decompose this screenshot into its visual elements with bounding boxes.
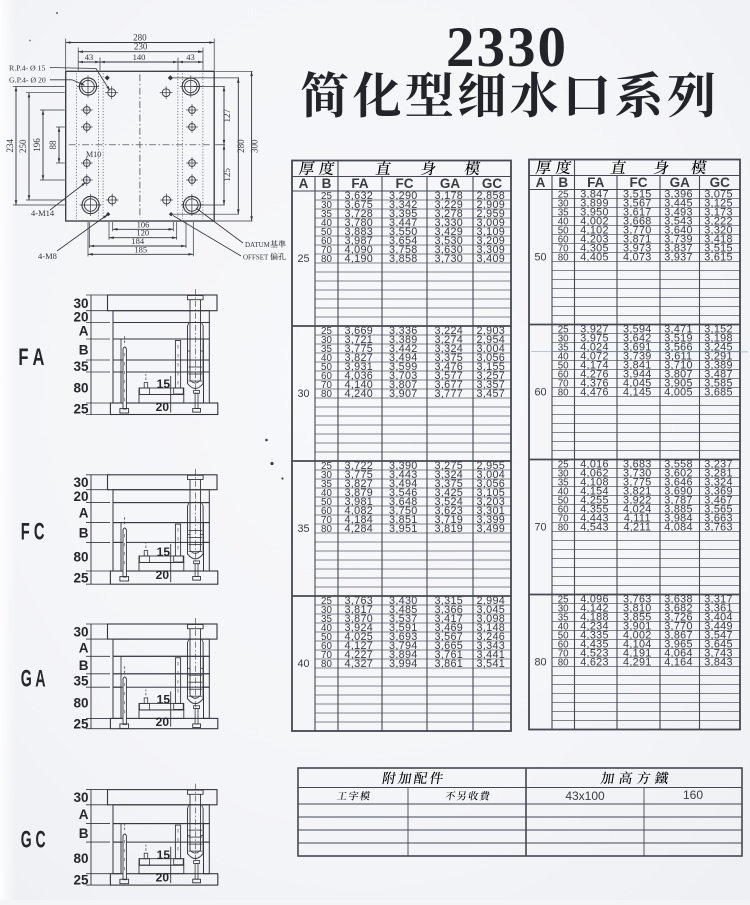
svg-text:3,843: 3,843 <box>704 657 733 669</box>
svg-text:25: 25 <box>73 717 89 732</box>
svg-text:3,861: 3,861 <box>435 658 464 670</box>
svg-text:196: 196 <box>32 138 42 152</box>
svg-text:4,190: 4,190 <box>345 253 374 265</box>
svg-text:43: 43 <box>85 52 94 62</box>
svg-text:230: 230 <box>134 42 148 52</box>
svg-text:4,327: 4,327 <box>345 658 374 670</box>
svg-text:3,763: 3,763 <box>704 522 733 534</box>
svg-text:25: 25 <box>73 571 89 586</box>
svg-text:A: A <box>79 807 89 822</box>
svg-text:80: 80 <box>321 524 332 535</box>
svg-text:250: 250 <box>18 139 28 153</box>
svg-text:4,405: 4,405 <box>580 252 609 264</box>
svg-text:4,476: 4,476 <box>580 387 609 399</box>
svg-text:125: 125 <box>222 168 232 182</box>
svg-text:160: 160 <box>683 788 703 802</box>
svg-text:3,994: 3,994 <box>389 658 418 670</box>
svg-text:20: 20 <box>73 489 88 504</box>
svg-text:3,730: 3,730 <box>435 253 464 265</box>
svg-text:80: 80 <box>73 380 88 395</box>
svg-text:35: 35 <box>297 523 309 535</box>
svg-text:B: B <box>558 175 568 190</box>
svg-text:G A: G A <box>21 665 46 692</box>
svg-text:3,499: 3,499 <box>477 523 506 535</box>
svg-text:30: 30 <box>73 624 88 639</box>
svg-text:GA: GA <box>440 176 461 191</box>
svg-text:M10: M10 <box>86 150 101 159</box>
svg-text:3,907: 3,907 <box>389 388 418 400</box>
svg-text:4,284: 4,284 <box>345 523 374 535</box>
svg-text:80: 80 <box>558 658 569 669</box>
svg-text:80: 80 <box>558 388 569 399</box>
svg-text:43x100: 43x100 <box>565 789 605 803</box>
svg-text:R.P.4- Ø 15: R.P.4- Ø 15 <box>9 64 45 73</box>
svg-text:20: 20 <box>156 871 170 885</box>
svg-text:20: 20 <box>156 400 170 414</box>
svg-text:B: B <box>79 342 89 357</box>
svg-text:4,005: 4,005 <box>664 387 693 399</box>
svg-text:25: 25 <box>73 402 89 417</box>
svg-text:80: 80 <box>73 696 88 711</box>
svg-text:4,164: 4,164 <box>664 657 693 669</box>
svg-text:FA: FA <box>351 176 369 191</box>
svg-text:140: 140 <box>133 52 146 62</box>
svg-text:4,084: 4,084 <box>664 522 693 534</box>
svg-text:B: B <box>79 658 89 673</box>
svg-text:25: 25 <box>73 872 89 887</box>
svg-text:60: 60 <box>534 387 546 399</box>
svg-text:70: 70 <box>534 522 546 534</box>
svg-text:50: 50 <box>534 252 546 264</box>
svg-text:OFFSET: OFFSET <box>243 254 269 262</box>
svg-text:15: 15 <box>157 848 171 862</box>
svg-text:B: B <box>79 826 89 841</box>
svg-text:80: 80 <box>558 253 569 264</box>
svg-text:20: 20 <box>156 568 170 582</box>
svg-text:280: 280 <box>236 139 246 153</box>
svg-text:G C: G C <box>21 826 46 853</box>
svg-text:3,937: 3,937 <box>664 252 693 264</box>
svg-text:234: 234 <box>5 139 15 153</box>
svg-text:4,211: 4,211 <box>623 522 651 534</box>
svg-text:80: 80 <box>73 550 88 565</box>
svg-text:G.P.4- Ø 20: G.P.4- Ø 20 <box>9 76 46 85</box>
svg-text:80: 80 <box>321 254 332 265</box>
svg-text:185: 185 <box>134 244 147 254</box>
svg-text:43: 43 <box>186 52 195 62</box>
svg-text:80: 80 <box>321 389 332 400</box>
svg-text:3,819: 3,819 <box>435 523 464 535</box>
svg-text:80: 80 <box>558 523 569 534</box>
svg-text:A: A <box>299 176 309 191</box>
svg-text:3,951: 3,951 <box>389 523 418 535</box>
svg-text:3,685: 3,685 <box>704 387 733 399</box>
svg-text:35: 35 <box>73 359 89 374</box>
svg-text:F C: F C <box>21 519 45 546</box>
svg-text:4,240: 4,240 <box>345 388 374 400</box>
svg-text:88: 88 <box>48 140 58 150</box>
svg-text:15: 15 <box>157 693 171 707</box>
svg-text:15: 15 <box>157 545 171 559</box>
svg-text:3,457: 3,457 <box>477 388 506 400</box>
svg-text:300: 300 <box>250 139 260 153</box>
svg-text:GC: GC <box>482 176 503 191</box>
svg-text:127: 127 <box>222 108 232 122</box>
svg-text:80: 80 <box>321 659 332 670</box>
svg-text:3,615: 3,615 <box>704 252 733 264</box>
svg-text:4,623: 4,623 <box>580 657 609 669</box>
svg-text:4,291: 4,291 <box>623 657 652 669</box>
svg-text:3,858: 3,858 <box>389 253 418 265</box>
svg-text:A: A <box>79 506 89 521</box>
svg-text:4,543: 4,543 <box>580 522 609 534</box>
svg-text:FC: FC <box>396 176 414 191</box>
svg-text:30: 30 <box>73 790 88 805</box>
svg-text:B: B <box>79 525 89 540</box>
svg-text:15: 15 <box>157 377 171 391</box>
svg-text:4-M8: 4-M8 <box>38 251 57 261</box>
svg-text:B: B <box>322 176 332 191</box>
svg-text:80: 80 <box>73 851 88 866</box>
svg-text:40: 40 <box>297 658 309 670</box>
svg-text:20: 20 <box>156 715 170 729</box>
svg-text:30: 30 <box>297 388 309 400</box>
svg-text:3,777: 3,777 <box>435 388 464 400</box>
svg-text:4,073: 4,073 <box>623 252 652 264</box>
svg-text:2330: 2330 <box>446 16 568 79</box>
svg-text:20: 20 <box>73 310 88 325</box>
svg-text:A: A <box>536 175 546 190</box>
svg-text:35: 35 <box>73 673 89 688</box>
svg-text:25: 25 <box>297 253 309 265</box>
svg-text:A: A <box>79 641 89 656</box>
svg-text:3,541: 3,541 <box>477 658 506 670</box>
svg-text:4-M14: 4-M14 <box>31 208 55 218</box>
svg-text:80: 80 <box>534 657 546 669</box>
svg-text:DATUM: DATUM <box>245 241 271 249</box>
svg-text:A: A <box>79 324 89 339</box>
svg-text:30: 30 <box>73 475 88 490</box>
svg-text:4,145: 4,145 <box>623 387 652 399</box>
svg-text:F A: F A <box>18 344 44 371</box>
svg-text:3,409: 3,409 <box>477 253 506 265</box>
